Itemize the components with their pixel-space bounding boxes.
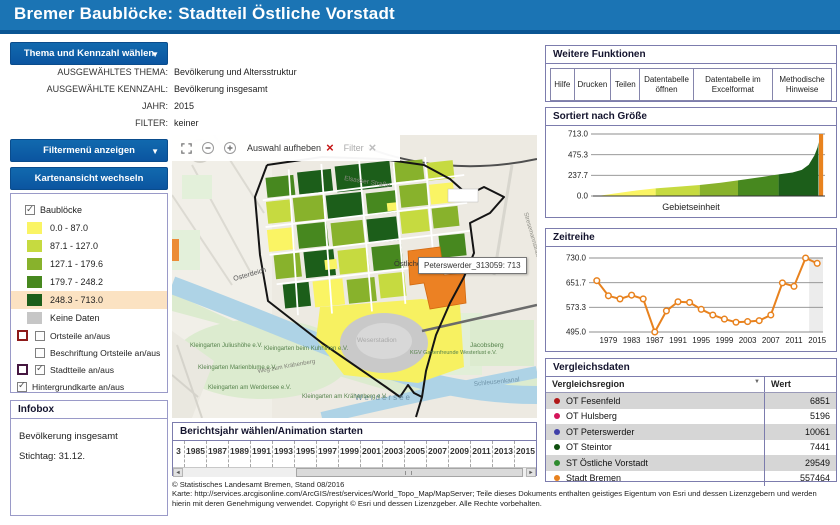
- legend-classes: 0.0 - 87.087.1 - 127.0127.1 - 179.6179.7…: [11, 219, 167, 327]
- infobox-title: Infobox: [11, 401, 167, 419]
- sorted-chart-title: Sortiert nach Größe: [546, 108, 836, 126]
- timeline-year[interactable]: 1997: [316, 441, 338, 467]
- function-button[interactable]: Methodische Hinweise: [772, 68, 832, 101]
- region-name: OT Steintor: [566, 442, 612, 452]
- timeline-year[interactable]: 1987: [206, 441, 228, 467]
- theme-select-button[interactable]: Thema und Kennzahl wählen ▼: [10, 42, 168, 65]
- timeline-year[interactable]: 1989: [228, 441, 250, 467]
- timeline-year[interactable]: 2011: [470, 441, 492, 467]
- selected-filter-row: FILTER:keiner: [0, 118, 199, 134]
- timeline-year[interactable]: 2001: [360, 441, 382, 467]
- legend-swatch: [27, 222, 42, 234]
- svg-text:1983: 1983: [623, 336, 641, 345]
- timeseries-panel: Zeitreihe 730.0651.7573.3495.01979198319…: [545, 228, 837, 352]
- region-value: 6851: [764, 393, 836, 409]
- svg-text:573.3: 573.3: [566, 303, 587, 312]
- region-color-dot: [554, 460, 560, 466]
- timeline-year[interactable]: 2007: [426, 441, 448, 467]
- timeline-year[interactable]: 1995: [294, 441, 316, 467]
- map-label-kgv-westerlust: KGV Gartenfreunde Westerlust e.V.: [410, 350, 497, 356]
- chevron-down-icon: ▼: [151, 141, 159, 162]
- comparison-title: Vergleichsdaten: [546, 359, 836, 377]
- function-button[interactable]: Drucken: [574, 68, 612, 101]
- svg-text:651.7: 651.7: [566, 278, 587, 287]
- legend-nodata-row: Keine Daten: [11, 309, 167, 327]
- function-buttons: HilfeDruckenTeilenDatentabelle öffnenDat…: [550, 68, 832, 101]
- map-container[interactable]: Osterdeich Östliche Vorstadt Werdersee W…: [172, 135, 537, 418]
- scroll-right-icon[interactable]: ►: [526, 468, 536, 477]
- legend-toggle-row[interactable]: Stadtteile an/aus: [11, 361, 167, 378]
- fullscreen-icon[interactable]: [180, 142, 193, 155]
- svg-text:1991: 1991: [669, 336, 687, 345]
- region-value: 5196: [764, 409, 836, 425]
- region-value: 7441: [764, 440, 836, 456]
- toggle-label: Ortsteile an/aus: [50, 331, 110, 341]
- legend-title: Baublöcke: [40, 205, 82, 215]
- filter-menu-button[interactable]: Filtermenü anzeigen ▼: [10, 139, 168, 162]
- toggle-checkbox[interactable]: [35, 331, 45, 341]
- map-canvas[interactable]: Osterdeich Östliche Vorstadt Werdersee W…: [172, 135, 537, 418]
- infobox-line-1: Bevölkerung insgesamt: [11, 431, 167, 442]
- legend-layer-row[interactable]: Baublöcke: [11, 201, 167, 219]
- legend-class-row: 87.1 - 127.0: [11, 237, 167, 255]
- baubloecke-checkbox[interactable]: [25, 205, 35, 215]
- timeseries-chart-svg: 730.0651.7573.3495.019791983198719911995…: [549, 250, 833, 350]
- legend-swatch: [27, 240, 42, 252]
- layer-outline-swatch: [17, 364, 28, 375]
- comparison-row[interactable]: Stadt Bremen557464: [546, 471, 836, 487]
- legend-class-label: 127.1 - 179.6: [50, 259, 103, 269]
- legend-toggles: Ortsteile an/ausBeschriftung Ortsteile a…: [11, 327, 167, 395]
- legend-class-label: Keine Daten: [50, 313, 100, 323]
- svg-text:495.0: 495.0: [566, 328, 587, 337]
- svg-text:1995: 1995: [692, 336, 710, 345]
- chevron-down-icon: ▼: [151, 44, 159, 65]
- comparison-region-header[interactable]: Vergleichsregion ▼: [546, 377, 764, 392]
- selected-filter-value: keiner: [174, 118, 199, 128]
- region-name: OT Fesenfeld: [566, 396, 620, 406]
- legend-class-row: 127.1 - 179.6: [11, 255, 167, 273]
- page-title: Bremer Baublöcke: Stadtteil Östliche Vor…: [14, 4, 395, 24]
- svg-text:2011: 2011: [785, 336, 803, 345]
- timeline-year[interactable]: 3: [173, 441, 184, 467]
- timeline-year[interactable]: 2015: [514, 441, 536, 467]
- layer-outline-swatch: [17, 330, 28, 341]
- region-color-dot: [554, 444, 560, 450]
- selected-kennzahl-value: Bevölkerung insgesamt: [174, 84, 268, 94]
- sort-indicator-icon: ▼: [754, 379, 760, 385]
- region-name: OT Hulsberg: [566, 411, 617, 421]
- timeline-scrollbar[interactable]: ◄ ►: [173, 467, 536, 477]
- legend-class-label: 0.0 - 87.0: [50, 223, 88, 233]
- svg-text:2003: 2003: [739, 336, 757, 345]
- map-label-kg-kuhhirten: Kleingarten beim Kuhhirten e.V.: [264, 346, 349, 352]
- map-label-jacobsberg: Jacobsberg: [470, 342, 504, 349]
- region-color-dot: [554, 475, 560, 481]
- toggle-label: Beschriftung Ortsteile an/aus: [50, 348, 160, 358]
- infobox-panel: Infobox Bevölkerung insgesamt Stichtag: …: [10, 400, 168, 516]
- map-view-label: Kartenansicht wechseln: [35, 173, 144, 184]
- selected-theme-label: AUSGEWÄHLTES THEMA:: [0, 67, 168, 77]
- timeline-year[interactable]: 2013: [492, 441, 514, 467]
- clear-selection-button[interactable]: Auswahl aufheben: [247, 143, 321, 153]
- timeline-year[interactable]: 1991: [250, 441, 272, 467]
- legend-class-row: 248.3 - 713.0: [11, 291, 167, 309]
- map-label-kg-kraehenberg: Kleingarten am Krähenberg e.V.: [302, 394, 388, 400]
- legend-toggle-row[interactable]: Hintergrundkarte an/aus: [11, 378, 167, 395]
- sorted-chart-xlabel: Gebietseinheit: [546, 202, 836, 212]
- toggle-checkbox[interactable]: [35, 348, 45, 358]
- timeline-year[interactable]: 1993: [272, 441, 294, 467]
- legend-panel: Baublöcke 0.0 - 87.087.1 - 127.0127.1 - …: [10, 193, 168, 393]
- infobox-line-2: Stichtag: 31.12.: [11, 451, 167, 462]
- timeline-panel: Berichtsjahr wählen/Animation starten 31…: [172, 422, 537, 476]
- selected-theme-row: AUSGEWÄHLTES THEMA:Bevölkerung und Alter…: [0, 67, 297, 83]
- functions-panel: Weitere Funktionen HilfeDruckenTeilenDat…: [545, 45, 837, 102]
- map-label-kg-juliushoehe: Kleingarten Juliushöhe e.V.: [190, 343, 263, 349]
- region-color-dot: [554, 398, 560, 404]
- svg-text:2007: 2007: [762, 336, 780, 345]
- region-name: ST Östliche Vorstadt: [566, 458, 648, 468]
- timeline-year[interactable]: 2009: [448, 441, 470, 467]
- timeline-title: Berichtsjahr wählen/Animation starten: [173, 423, 536, 441]
- comparison-rows: OT Fesenfeld6851OT Hulsberg5196OT Peters…: [546, 393, 836, 486]
- selected-jahr-row: JAHR:2015: [0, 101, 194, 117]
- theme-select-label: Thema und Kennzahl wählen: [24, 48, 154, 59]
- comparison-row[interactable]: OT Fesenfeld6851: [546, 393, 836, 409]
- selected-jahr-value: 2015: [174, 101, 194, 111]
- selected-theme-value: Bevölkerung und Altersstruktur: [174, 67, 297, 77]
- scrollbar-thumb[interactable]: [296, 468, 523, 477]
- svg-text:1999: 1999: [716, 336, 734, 345]
- map-toolbar: Auswahl aufheben × Filter ×: [172, 135, 400, 161]
- region-color-dot: [554, 413, 560, 419]
- region-value: 10061: [764, 424, 836, 440]
- toggle-checkbox[interactable]: [17, 382, 27, 392]
- svg-text:0.0: 0.0: [577, 192, 589, 201]
- timeline-years: 3198519871989199119931995199719992001200…: [173, 441, 536, 467]
- timeseries-title: Zeitreihe: [546, 229, 836, 247]
- copyright-line-2: Karte: http://services.arcgisonline.com/…: [172, 489, 836, 508]
- comparison-panel: Vergleichsdaten Vergleichsregion ▼ Wert …: [545, 358, 837, 482]
- toggle-label: Stadtteile an/aus: [50, 365, 114, 375]
- selected-kennzahl-row: AUSGEWÄHLTE KENNZAHL:Bevölkerung insgesa…: [0, 84, 268, 100]
- comparison-row[interactable]: ST Östliche Vorstadt29549: [546, 455, 836, 471]
- clear-selection-x-icon[interactable]: ×: [326, 143, 334, 153]
- legend-toggle-row[interactable]: Ortsteile an/aus: [11, 327, 167, 344]
- timeline-year[interactable]: 1999: [338, 441, 360, 467]
- functions-title: Weitere Funktionen: [546, 46, 836, 64]
- region-value: 29549: [764, 455, 836, 471]
- header-strip: [0, 30, 840, 34]
- legend-class-label: 179.7 - 248.2: [50, 277, 103, 287]
- timeline-year[interactable]: 2005: [404, 441, 426, 467]
- scroll-left-icon[interactable]: ◄: [173, 468, 183, 477]
- legend-swatch: [27, 312, 42, 324]
- svg-text:237.7: 237.7: [568, 171, 589, 180]
- svg-text:475.3: 475.3: [568, 150, 589, 159]
- function-button[interactable]: Datentabelle im Excelformat: [693, 68, 773, 101]
- zoom-out-icon[interactable]: [201, 141, 215, 155]
- region-name: Stadt Bremen: [566, 473, 621, 483]
- function-button[interactable]: Datentabelle öffnen: [639, 68, 693, 101]
- comparison-row[interactable]: OT Hulsberg5196: [546, 409, 836, 425]
- filter-clear-button[interactable]: Filter: [344, 143, 364, 153]
- timeline-year[interactable]: 2003: [382, 441, 404, 467]
- map-view-button[interactable]: Kartenansicht wechseln: [10, 167, 168, 190]
- svg-text:730.0: 730.0: [566, 254, 587, 263]
- comparison-row[interactable]: OT Steintor7441: [546, 440, 836, 456]
- legend-class-row: 0.0 - 87.0: [11, 219, 167, 237]
- function-button[interactable]: Teilen: [610, 68, 640, 101]
- map-label-box: [448, 189, 478, 202]
- selected-jahr-label: JAHR:: [0, 101, 168, 111]
- svg-text:2015: 2015: [808, 336, 826, 345]
- comparison-value-header[interactable]: Wert: [764, 377, 836, 392]
- legend-class-label: 87.1 - 127.0: [50, 241, 98, 251]
- filter-menu-label: Filtermenü anzeigen: [43, 145, 135, 156]
- region-color-dot: [554, 429, 560, 435]
- toggle-checkbox[interactable]: [35, 365, 45, 375]
- map-label-kg-werdersee: Kleingarten am Werdersee e.V.: [208, 385, 291, 391]
- timeline-year[interactable]: 1985: [184, 441, 206, 467]
- map-tooltip: Peterswerder_313059: 713: [418, 257, 527, 274]
- legend-swatch: [27, 276, 42, 288]
- svg-text:713.0: 713.0: [568, 130, 589, 139]
- comparison-row[interactable]: OT Peterswerder10061: [546, 424, 836, 440]
- region-name: OT Peterswerder: [566, 427, 634, 437]
- legend-toggle-row[interactable]: Beschriftung Ortsteile an/aus: [11, 344, 167, 361]
- app-header: Bremer Baublöcke: Stadtteil Östliche Vor…: [0, 0, 840, 30]
- legend-swatch: [27, 258, 42, 270]
- svg-text:1979: 1979: [600, 336, 618, 345]
- zoom-in-icon[interactable]: [223, 141, 237, 155]
- legend-class-label: 248.3 - 713.0: [50, 295, 103, 305]
- sorted-chart-svg: 713.0475.3237.70.0: [549, 128, 833, 204]
- svg-text:1987: 1987: [646, 336, 664, 345]
- comparison-header-row: Vergleichsregion ▼ Wert: [546, 377, 836, 393]
- legend-swatch: [27, 294, 42, 306]
- app: Bremer Baublöcke: Stadtteil Östliche Vor…: [0, 0, 840, 525]
- function-button[interactable]: Hilfe: [550, 68, 575, 101]
- selected-filter-label: FILTER:: [0, 118, 168, 128]
- region-value: 557464: [764, 471, 836, 487]
- toggle-label: Hintergrundkarte an/aus: [32, 382, 124, 392]
- filter-x-icon[interactable]: ×: [369, 143, 377, 153]
- map-label-weserstadion: Weserstadion: [357, 337, 397, 344]
- legend-class-row: 179.7 - 248.2: [11, 273, 167, 291]
- selected-kennzahl-label: AUSGEWÄHLTE KENNZAHL:: [0, 84, 168, 94]
- sorted-chart-panel: Sortiert nach Größe 713.0475.3237.70.0 G…: [545, 107, 837, 218]
